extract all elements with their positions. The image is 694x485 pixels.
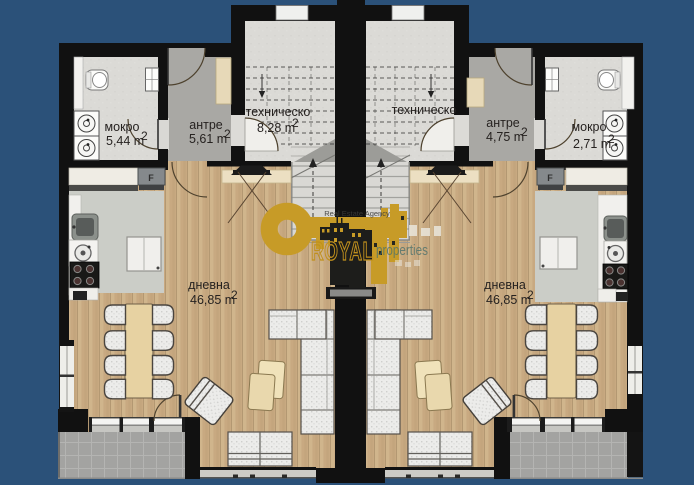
- svg-text:F: F: [148, 173, 154, 183]
- svg-text:2: 2: [292, 116, 299, 130]
- svg-text:техническо: техническо: [392, 103, 457, 117]
- svg-text:4,75 m: 4,75 m: [486, 130, 524, 144]
- svg-text:8,28 m: 8,28 m: [257, 121, 295, 135]
- svg-text:2: 2: [141, 129, 148, 143]
- svg-text:антре: антре: [486, 116, 520, 130]
- svg-text:2: 2: [527, 288, 534, 302]
- svg-text:properties: properties: [376, 242, 428, 259]
- svg-text:F: F: [547, 173, 553, 183]
- svg-text:2: 2: [608, 132, 615, 146]
- svg-text:46,85 m: 46,85 m: [486, 293, 531, 307]
- svg-text:5,44 m: 5,44 m: [106, 134, 144, 148]
- svg-text:Real Estate Agency: Real Estate Agency: [324, 209, 390, 218]
- svg-text:дневна: дневна: [484, 278, 526, 292]
- svg-text:2,71 m: 2,71 m: [573, 137, 611, 151]
- svg-text:мокро: мокро: [105, 120, 140, 134]
- svg-text:антре: антре: [189, 118, 223, 132]
- svg-text:2: 2: [224, 127, 231, 141]
- svg-text:46,85 m: 46,85 m: [190, 293, 235, 307]
- svg-text:2: 2: [521, 125, 528, 139]
- svg-text:техническо: техническо: [246, 105, 311, 119]
- svg-text:дневна: дневна: [188, 278, 230, 292]
- svg-text:мокро: мокро: [572, 120, 607, 134]
- svg-text:2: 2: [231, 288, 238, 302]
- svg-text:ROYAL: ROYAL: [311, 236, 374, 266]
- svg-text:5,61 m: 5,61 m: [189, 132, 227, 146]
